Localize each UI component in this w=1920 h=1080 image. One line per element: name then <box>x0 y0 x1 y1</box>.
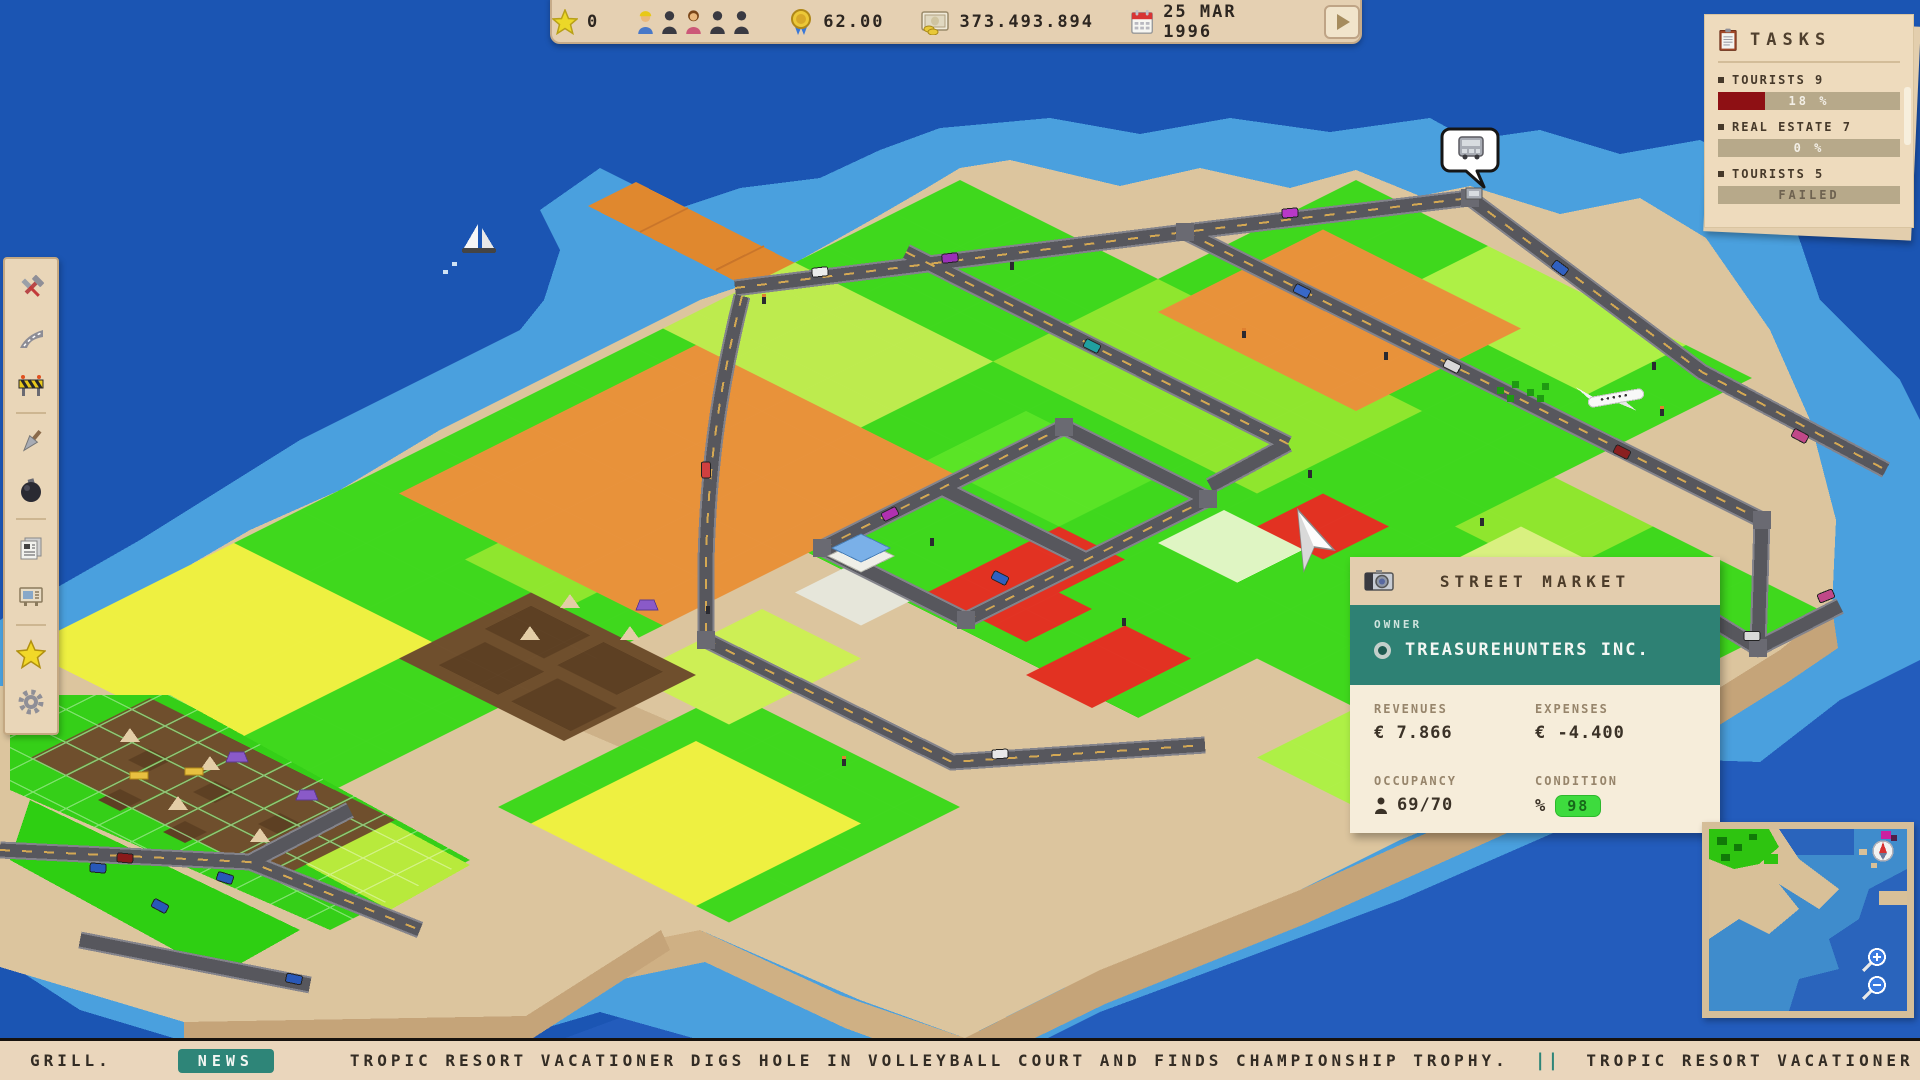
expenses-stat: EXPENSES € -4.400 <box>1535 702 1696 759</box>
tool-shovel-button[interactable] <box>14 426 48 458</box>
minimap <box>1702 822 1914 1018</box>
tool-road-button[interactable] <box>14 320 48 352</box>
task-item-label[interactable]: TOURISTS 9 <box>1718 73 1900 87</box>
bullet-icon <box>1718 77 1724 83</box>
money-icon <box>920 9 950 35</box>
newspaper-icon <box>16 533 46 563</box>
occupancy-label: OCCUPANCY <box>1374 774 1535 788</box>
rating-group[interactable]: 62.00 <box>788 8 884 36</box>
news-badge: NEWS <box>178 1049 274 1073</box>
citizen-icon <box>707 9 728 34</box>
revenues-value: € 7.866 <box>1374 723 1535 743</box>
reputation-value: 0 <box>587 12 599 32</box>
building-panel-header: STREET MARKET <box>1350 557 1720 605</box>
ticker-separator: || <box>1535 1050 1561 1071</box>
build-toolbar <box>3 257 59 735</box>
build-tools-icon <box>16 273 46 303</box>
owner-label: OWNER <box>1374 618 1696 631</box>
tasks-title: TASKS <box>1750 30 1831 50</box>
clipboard-icon <box>1718 27 1738 52</box>
money-value: 373.493.894 <box>959 12 1094 32</box>
citizen-icon <box>731 9 752 34</box>
mouse-cursor-icon <box>1290 506 1350 578</box>
billboard-icon <box>16 581 46 611</box>
tasks-header: TASKS <box>1718 27 1900 52</box>
tool-demolish-button[interactable] <box>14 474 48 506</box>
task-progress-bar: 0 % <box>1718 139 1900 157</box>
condition-label: CONDITION <box>1535 774 1696 788</box>
construction-barrier-icon <box>16 369 46 399</box>
news-ticker: GRILL. NEWS TROPIC RESORT VACATIONER DIG… <box>0 1038 1920 1080</box>
ticker-headline-tail: GRILL. <box>30 1051 112 1070</box>
game-map[interactable] <box>0 0 1920 1080</box>
tool-barrier-button[interactable] <box>14 368 48 400</box>
rating-value: 62.00 <box>823 12 884 32</box>
revenues-label: REVENUES <box>1374 702 1535 716</box>
toolbar-divider <box>16 412 46 414</box>
owner-name[interactable]: TREASUREHUNTERS INC. <box>1405 640 1650 660</box>
date-group[interactable]: 25 MAR 1996 <box>1130 2 1288 42</box>
building-title: STREET MARKET <box>1440 572 1630 591</box>
owner-company-icon <box>1374 642 1391 659</box>
task-progress-text: 18 % <box>1718 92 1900 110</box>
tool-billboard-button[interactable] <box>14 580 48 612</box>
task-progress-text: FAILED <box>1718 186 1900 204</box>
compass-icon <box>1873 841 1893 861</box>
percent-icon: % <box>1535 796 1546 816</box>
person-icon <box>1374 797 1388 814</box>
play-icon <box>1337 14 1350 30</box>
toolbar-divider <box>16 624 46 626</box>
date-value: 25 MAR 1996 <box>1163 2 1288 42</box>
ticker-headline: TROPIC RESORT VACATIONER DIGS HOLE IN VO… <box>350 1051 1509 1070</box>
star-icon <box>16 639 46 669</box>
task-progress-bar: FAILED <box>1718 186 1900 204</box>
demolish-bomb-icon <box>16 475 46 505</box>
building-info-panel: STREET MARKET OWNER TREASUREHUNTERS INC.… <box>1350 557 1720 833</box>
tasks-divider <box>1718 61 1900 63</box>
camera-icon[interactable] <box>1364 569 1394 593</box>
condition-stat: CONDITION % 98 <box>1535 774 1696 833</box>
shovel-icon <box>16 427 46 457</box>
woman-icon <box>683 9 704 34</box>
expenses-value: € -4.400 <box>1535 723 1696 743</box>
task-progress-bar: 18 % <box>1718 92 1900 110</box>
tool-build-button[interactable] <box>14 272 48 304</box>
minimap-map[interactable] <box>1709 829 1907 1011</box>
bus-notification-bubble[interactable] <box>1438 126 1508 192</box>
tasks-scrollbar[interactable] <box>1904 87 1911 145</box>
road-icon <box>16 321 46 351</box>
building-stats: REVENUES € 7.866 EXPENSES € -4.400 OCCUP… <box>1350 685 1720 833</box>
owner-section: OWNER TREASUREHUNTERS INC. <box>1350 605 1720 685</box>
citizen-icon <box>659 9 680 34</box>
tool-settings-button[interactable] <box>14 686 48 718</box>
occupancy-stat: OCCUPANCY 69/70 <box>1374 774 1535 833</box>
calendar-icon <box>1130 8 1154 36</box>
game-screen: 0 62.00 <box>0 0 1920 1080</box>
tool-newspaper-button[interactable] <box>14 532 48 564</box>
expenses-label: EXPENSES <box>1535 702 1696 716</box>
tool-achievements-button[interactable] <box>14 638 48 670</box>
task-item-label[interactable]: REAL ESTATE 7 <box>1718 120 1900 134</box>
task-item-label[interactable]: TOURISTS 5 <box>1718 167 1900 181</box>
bullet-icon <box>1718 124 1724 130</box>
occupancy-value: 69/70 <box>1397 795 1453 815</box>
reputation-group[interactable]: 0 <box>552 9 599 35</box>
ticker-headline-next: TROPIC RESORT VACATIONER DIGS HOLE IN VO… <box>1586 1051 1920 1070</box>
bullet-icon <box>1718 171 1724 177</box>
top-hud: 0 62.00 <box>550 0 1362 44</box>
toolbar-divider <box>16 518 46 520</box>
revenues-stat: REVENUES € 7.866 <box>1374 702 1535 759</box>
condition-badge: 98 <box>1555 795 1601 817</box>
bus-icon <box>1459 137 1483 160</box>
play-speed-button[interactable] <box>1324 5 1360 39</box>
worker-icon <box>635 9 656 34</box>
star-icon <box>552 9 578 35</box>
tasks-panel: TASKS TOURISTS 9 18 % REAL ESTATE 7 0 % … <box>1704 14 1916 238</box>
population-group[interactable] <box>635 9 752 34</box>
medal-icon <box>788 8 814 36</box>
task-progress-text: 0 % <box>1718 139 1900 157</box>
settings-gear-icon <box>16 687 46 717</box>
money-group[interactable]: 373.493.894 <box>920 9 1094 35</box>
